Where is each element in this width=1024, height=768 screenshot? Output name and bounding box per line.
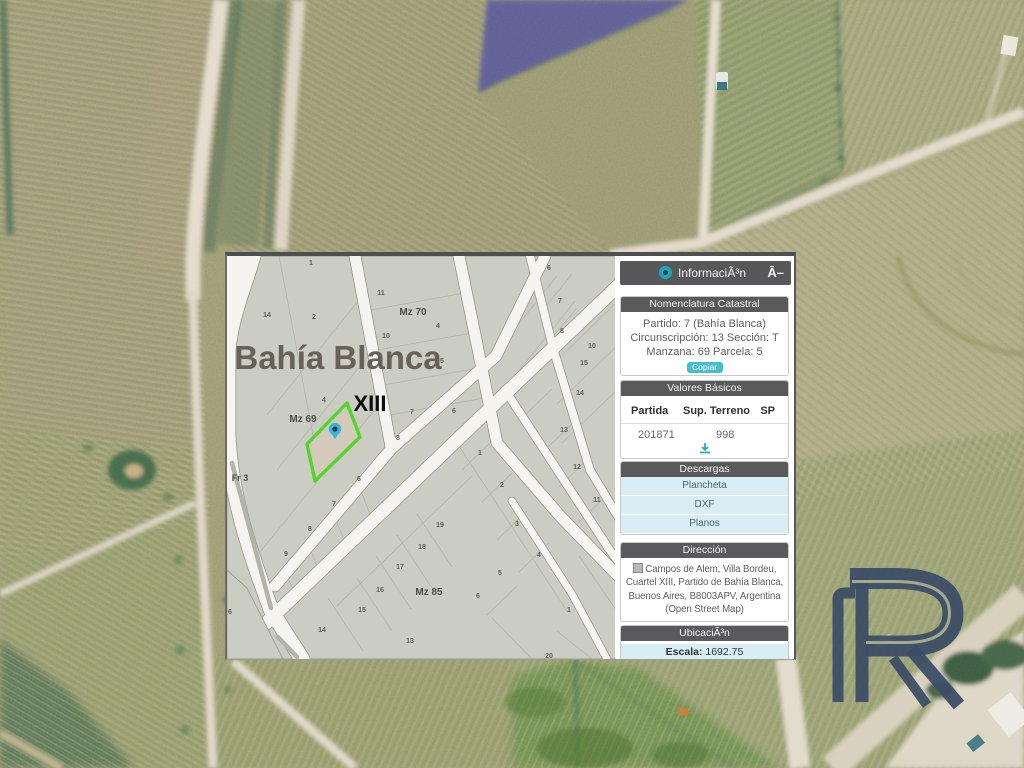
svg-text:8: 8 — [308, 526, 312, 533]
svg-text:14: 14 — [318, 627, 326, 634]
svg-text:4: 4 — [322, 397, 326, 404]
svg-text:17: 17 — [396, 564, 404, 571]
svg-text:6: 6 — [228, 609, 232, 616]
svg-text:5: 5 — [498, 570, 502, 577]
svg-text:4: 4 — [436, 323, 440, 330]
svg-text:2: 2 — [500, 482, 504, 489]
svg-text:13: 13 — [560, 427, 568, 434]
svg-text:Mz 85: Mz 85 — [415, 587, 443, 598]
svg-text:6: 6 — [357, 476, 361, 483]
svg-text:9: 9 — [284, 551, 288, 558]
svg-text:XIII: XIII — [353, 391, 386, 416]
svg-text:11: 11 — [593, 497, 601, 504]
svg-text:2: 2 — [312, 314, 316, 321]
svg-text:10: 10 — [588, 343, 596, 350]
svg-text:15: 15 — [580, 360, 588, 367]
svg-text:15: 15 — [358, 607, 366, 614]
svg-text:19: 19 — [436, 522, 444, 529]
svg-text:4: 4 — [537, 552, 541, 559]
svg-text:20: 20 — [545, 653, 553, 659]
svg-text:7: 7 — [410, 409, 414, 416]
svg-text:Bahía Blanca: Bahía Blanca — [234, 339, 442, 376]
svg-text:Mz 70: Mz 70 — [399, 307, 427, 318]
svg-text:5: 5 — [440, 358, 444, 365]
svg-text:1: 1 — [567, 607, 571, 614]
svg-text:6: 6 — [547, 265, 551, 272]
svg-text:16: 16 — [376, 587, 384, 594]
svg-text:10: 10 — [382, 333, 390, 340]
svg-text:11: 11 — [377, 290, 385, 297]
svg-text:3: 3 — [515, 521, 519, 528]
svg-text:6: 6 — [476, 593, 480, 600]
svg-text:7: 7 — [558, 298, 562, 305]
svg-text:8: 8 — [396, 435, 400, 442]
svg-text:7: 7 — [332, 501, 336, 508]
svg-text:13: 13 — [406, 638, 414, 645]
svg-text:12: 12 — [573, 464, 581, 471]
svg-text:1: 1 — [309, 260, 313, 267]
svg-text:1: 1 — [478, 450, 482, 457]
svg-text:14: 14 — [263, 312, 271, 319]
svg-text:6: 6 — [452, 408, 456, 415]
svg-text:18: 18 — [418, 544, 426, 551]
svg-text:Mz 69: Mz 69 — [289, 414, 317, 425]
svg-text:14: 14 — [576, 390, 584, 397]
svg-text:Fr 3: Fr 3 — [232, 473, 249, 483]
svg-text:8: 8 — [560, 328, 564, 335]
